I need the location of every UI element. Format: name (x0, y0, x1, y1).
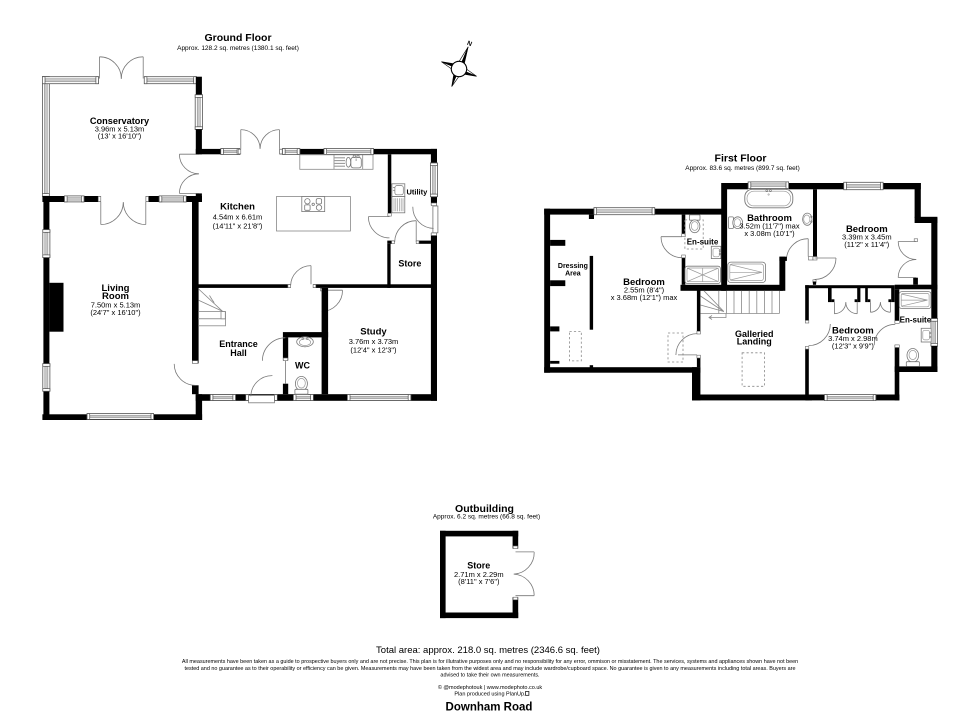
svg-text:Approx. 83.6 sq. metres (899.7: Approx. 83.6 sq. metres (899.7 sq. feet) (685, 165, 800, 172)
svg-text:WC: WC (295, 360, 310, 370)
svg-text:Dressing: Dressing (558, 263, 588, 270)
svg-text:(14'11" x 21'8"): (14'11" x 21'8") (213, 221, 263, 230)
svg-text:All measurements have been tak: All measurements have been taken as a gu… (182, 659, 798, 665)
svg-text:(8'11" x 7'6"): (8'11" x 7'6") (458, 577, 500, 586)
svg-text:Downham Road: Downham Road (446, 701, 533, 712)
svg-text:(24'7" x 16'10"): (24'7" x 16'10") (90, 308, 141, 317)
svg-text:Study: Study (360, 327, 387, 338)
svg-text:First Floor: First Floor (715, 153, 767, 165)
svg-text:(13' x 16'10"): (13' x 16'10") (98, 132, 142, 141)
svg-text:Store: Store (398, 258, 421, 268)
svg-text:Area: Area (565, 270, 581, 277)
svg-text:En-suite: En-suite (687, 237, 719, 246)
svg-text:Approx. 128.2 sq. metres (1380: Approx. 128.2 sq. metres (1380.1 sq. fee… (177, 45, 299, 52)
svg-text:(12'4" x 12'3"): (12'4" x 12'3") (350, 345, 397, 354)
svg-text:En-suite: En-suite (900, 315, 932, 324)
svg-text:Hall: Hall (230, 348, 247, 358)
svg-text:Landing: Landing (737, 337, 772, 347)
svg-text:x 3.68m (12'1") max: x 3.68m (12'1") max (611, 293, 678, 302)
svg-text:Approx. 6.2 sq. metres (66.8 s: Approx. 6.2 sq. metres (66.8 sq. feet) (433, 514, 540, 521)
svg-text:(11'2" x 11'4"): (11'2" x 11'4") (844, 240, 890, 249)
svg-text:Total area: approx. 218.0 sq.: Total area: approx. 218.0 sq. metres (23… (376, 645, 600, 656)
svg-text:tested and no guarantee as to: tested and no guarantee as to their oper… (184, 666, 795, 672)
svg-text:4.54m x 6.61m: 4.54m x 6.61m (213, 212, 263, 221)
svg-text:x 3.08m (10'1"): x 3.08m (10'1") (744, 229, 795, 238)
svg-text:Plan produced using PlanUp.: Plan produced using PlanUp. (454, 692, 526, 698)
svg-text:Kitchen: Kitchen (220, 202, 255, 213)
svg-text:Ground Floor: Ground Floor (204, 32, 271, 44)
svg-text:(12'3" x 9'9"): (12'3" x 9'9") (832, 342, 874, 351)
svg-text:© @modephotouk | www.modephoto: © @modephotouk | www.modephoto.co.uk (438, 684, 543, 691)
svg-text:Utility: Utility (406, 187, 428, 196)
svg-text:advised to take their own meas: advised to take their own measurements. (440, 673, 540, 679)
